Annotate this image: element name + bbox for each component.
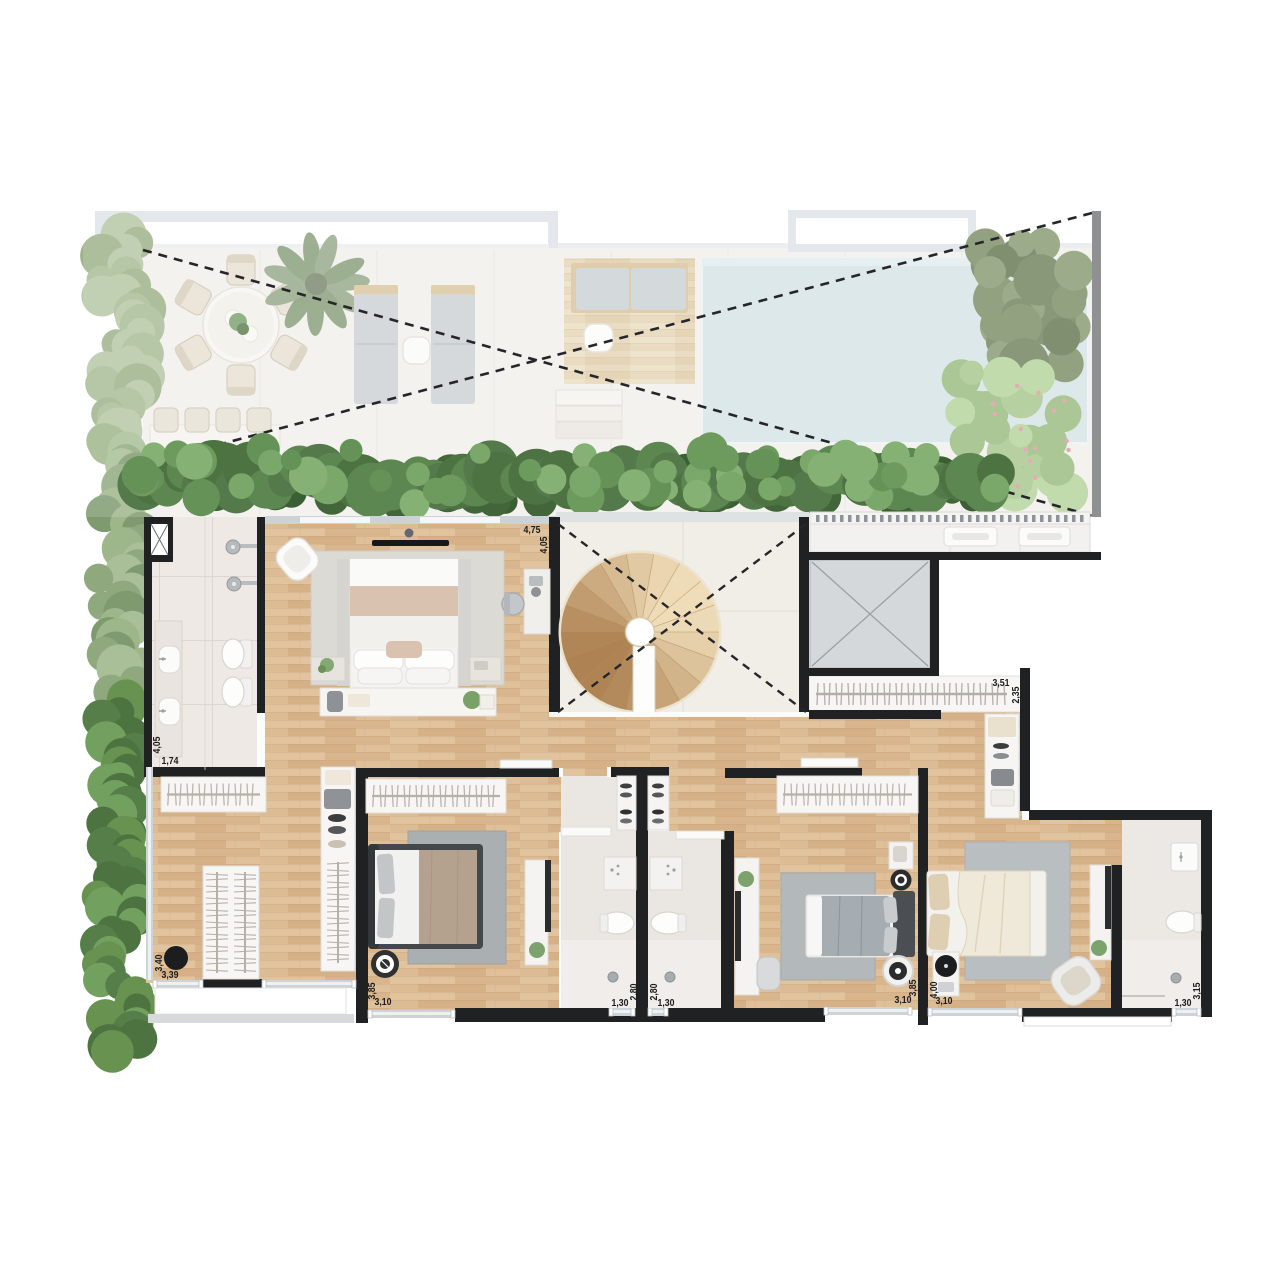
svg-text:3,51: 3,51 xyxy=(993,678,1010,689)
svg-text:2,80: 2,80 xyxy=(629,983,640,1000)
svg-text:3,85: 3,85 xyxy=(908,979,919,996)
svg-text:4,75: 4,75 xyxy=(524,525,541,536)
svg-text:1,30: 1,30 xyxy=(1175,998,1192,1009)
svg-text:3,10: 3,10 xyxy=(375,997,392,1008)
svg-text:3,15: 3,15 xyxy=(1192,982,1203,999)
svg-text:3,10: 3,10 xyxy=(895,995,912,1006)
svg-text:1,30: 1,30 xyxy=(658,998,675,1009)
svg-text:3,39: 3,39 xyxy=(162,970,179,981)
svg-text:3,10: 3,10 xyxy=(936,996,953,1007)
svg-text:1,74: 1,74 xyxy=(162,756,179,767)
svg-text:4,05: 4,05 xyxy=(539,536,550,553)
svg-text:4,05: 4,05 xyxy=(152,736,163,753)
svg-text:3,40: 3,40 xyxy=(154,954,165,971)
svg-text:2,35: 2,35 xyxy=(1011,686,1022,703)
svg-text:1,30: 1,30 xyxy=(612,998,629,1009)
